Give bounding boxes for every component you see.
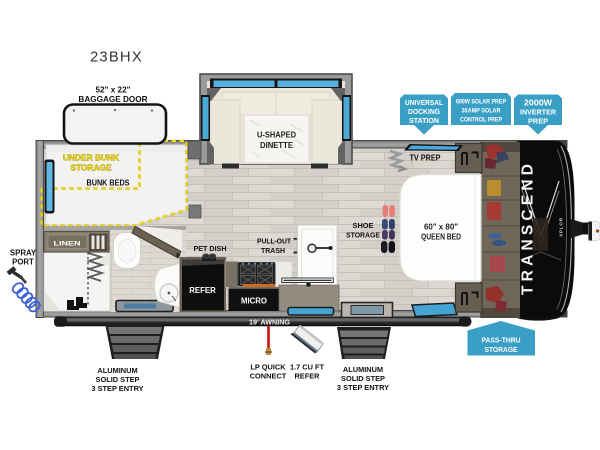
svg-text:TRANSCEND: TRANSCEND xyxy=(520,161,537,295)
svg-text:STORAGE: STORAGE xyxy=(485,345,518,354)
svg-text:ALUMINUM: ALUMINUM xyxy=(97,366,137,375)
svg-text:1.7 CU FT: 1.7 CU FT xyxy=(290,363,325,372)
svg-text:PET DISH: PET DISH xyxy=(194,244,227,253)
svg-text:DOCKING: DOCKING xyxy=(408,107,440,116)
svg-text:2000W: 2000W xyxy=(524,98,553,108)
svg-text:60" x 80": 60" x 80" xyxy=(424,223,458,232)
svg-text:BUNK BEDS: BUNK BEDS xyxy=(87,178,130,188)
svg-text:TRASH: TRASH xyxy=(261,246,285,255)
svg-text:INVERTER: INVERTER xyxy=(520,108,556,117)
svg-text:PREP: PREP xyxy=(528,117,548,126)
svg-text:ALUMINUM: ALUMINUM xyxy=(343,365,383,374)
svg-text:SOLID STEP: SOLID STEP xyxy=(341,374,385,383)
svg-text:DINETTE: DINETTE xyxy=(260,140,293,150)
svg-text:BAGGAGE DOOR: BAGGAGE DOOR xyxy=(78,95,147,104)
svg-text:LP QUICK: LP QUICK xyxy=(250,363,286,372)
svg-text:STORAGE: STORAGE xyxy=(70,163,112,173)
svg-text:TV PREP: TV PREP xyxy=(410,154,441,163)
svg-text:REFER: REFER xyxy=(294,372,320,381)
svg-text:19' AWNING: 19' AWNING xyxy=(249,318,290,327)
svg-text:PASS-THRU: PASS-THRU xyxy=(482,336,521,345)
svg-text:UNIVERSAL: UNIVERSAL xyxy=(405,98,443,107)
svg-text:MICRO: MICRO xyxy=(241,297,267,306)
svg-text:SHOE: SHOE xyxy=(353,221,374,230)
svg-text:CONNECT: CONNECT xyxy=(250,372,287,381)
svg-text:30AMP SOLAR: 30AMP SOLAR xyxy=(462,108,501,115)
svg-text:600W SOLAR PREP: 600W SOLAR PREP xyxy=(456,99,506,106)
svg-text:STATION: STATION xyxy=(409,116,439,125)
svg-text:PORT: PORT xyxy=(12,258,34,267)
svg-text:XPLOR: XPLOR xyxy=(559,217,564,237)
svg-text:UNDER BUNK: UNDER BUNK xyxy=(63,153,119,163)
svg-text:U-SHAPED: U-SHAPED xyxy=(257,130,296,140)
svg-text:REFER: REFER xyxy=(189,286,216,295)
svg-text:PULL-OUT: PULL-OUT xyxy=(257,237,291,246)
svg-text:LINEN: LINEN xyxy=(54,240,81,247)
svg-text:23BHX: 23BHX xyxy=(90,50,143,66)
svg-text:52" x 22": 52" x 22" xyxy=(95,86,130,95)
svg-text:SPRAY: SPRAY xyxy=(10,249,37,258)
svg-text:QUEEN BED: QUEEN BED xyxy=(421,233,461,242)
svg-text:SOLID STEP: SOLID STEP xyxy=(96,375,140,384)
svg-text:STORAGE: STORAGE xyxy=(346,231,380,240)
svg-text:CONTROL PREP: CONTROL PREP xyxy=(460,117,502,124)
svg-text:3 STEP ENTRY: 3 STEP ENTRY xyxy=(91,384,143,393)
svg-text:3 STEP ENTRY: 3 STEP ENTRY xyxy=(337,383,389,392)
